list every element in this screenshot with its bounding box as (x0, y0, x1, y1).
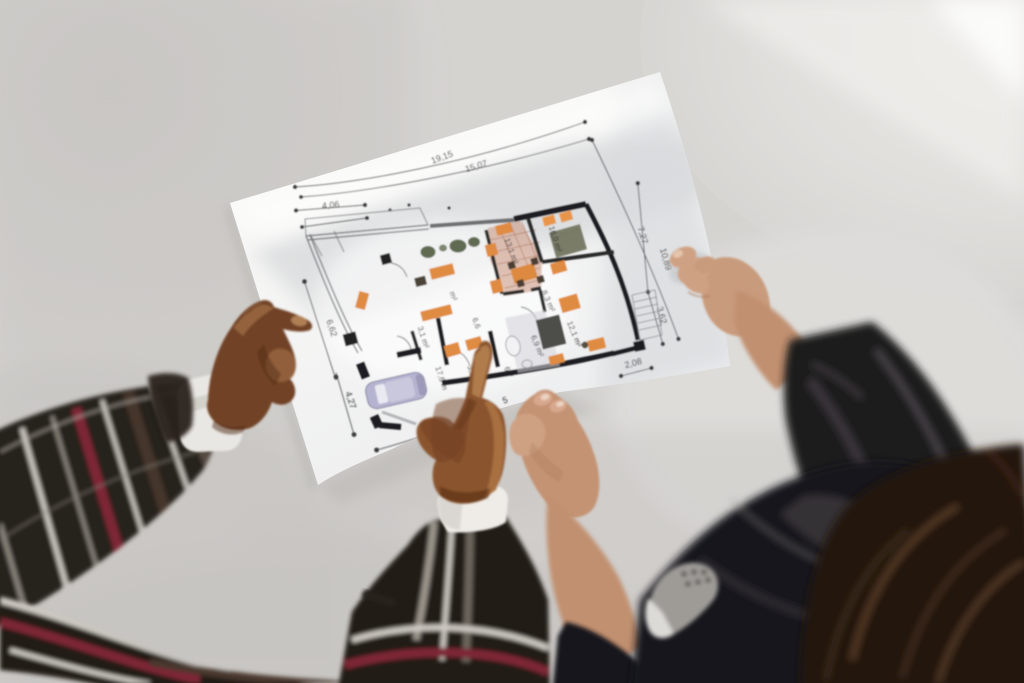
svg-text:4,06: 4,06 (321, 199, 339, 211)
